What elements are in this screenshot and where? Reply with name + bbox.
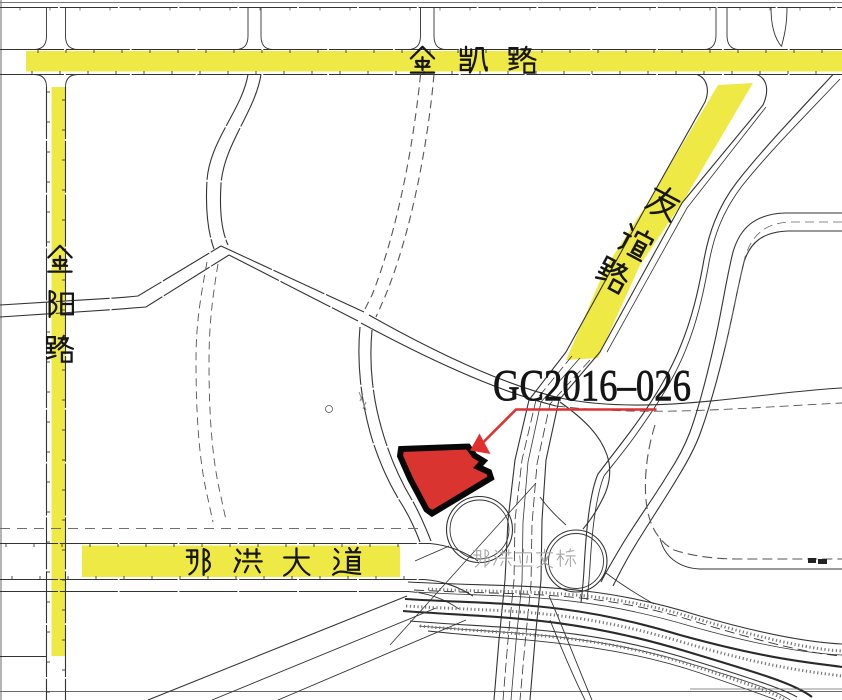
svg-text:GC2016–026: GC2016–026 (493, 361, 691, 410)
